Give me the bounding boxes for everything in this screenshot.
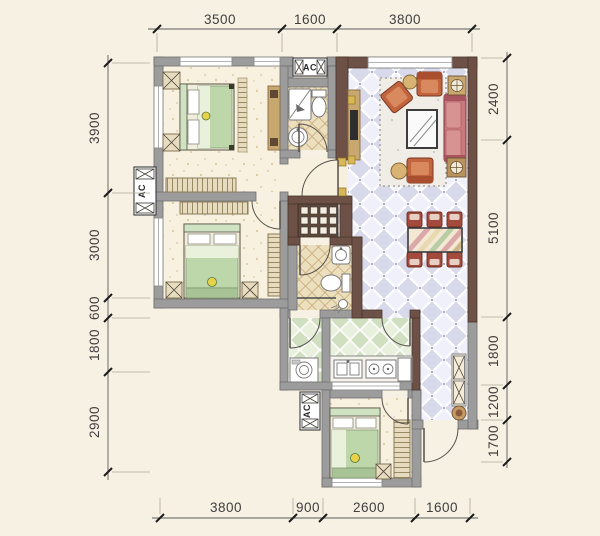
wall-top-stub <box>327 57 336 66</box>
bed-icon <box>184 224 240 298</box>
dresser-icon <box>268 86 280 150</box>
dim-label: 1600 <box>294 12 326 27</box>
stove-icon <box>366 360 396 378</box>
ac-unit-top: AC <box>293 58 327 76</box>
wall-living-left <box>336 57 348 160</box>
window-bedroom1-left <box>154 86 163 148</box>
shower-icon <box>289 89 311 120</box>
floor-plan-canvas: AC AC AC 3500 1600 3 <box>0 0 600 536</box>
window-kitchen-bottom <box>332 382 400 390</box>
dim-label: 3500 <box>204 12 236 27</box>
wall-bathroom1-corner <box>328 150 336 158</box>
ac-unit-left: AC <box>134 167 156 215</box>
wall-bathroom1-bottom <box>280 150 300 158</box>
laundry-fixtures <box>290 358 318 382</box>
window-bedroom3-bottom <box>332 478 382 487</box>
dining-set <box>404 212 472 267</box>
dim-label: 3900 <box>87 112 102 144</box>
floor-plan: AC AC AC 3500 1600 3 <box>0 0 600 536</box>
wall-bathroom2-left <box>288 245 297 310</box>
bedside-runner <box>238 78 247 152</box>
window-bedroom2-left <box>154 218 163 286</box>
wall-entry-bottom-a <box>412 420 423 429</box>
washing-machine-icon <box>290 358 318 382</box>
kitchen-fixtures <box>330 356 412 382</box>
shoe-cabinet-icon <box>298 204 338 237</box>
door-jamb-bottom <box>338 188 346 196</box>
side-wardrobe-icon <box>268 234 280 296</box>
window-bedroom1-top-1 <box>180 57 232 66</box>
wall-bathroom1-right <box>328 66 336 150</box>
dim-label: 5100 <box>486 212 501 244</box>
wall-bedroom2-door-stub <box>280 192 288 201</box>
dim-label: 1600 <box>426 500 458 515</box>
dim-label: 900 <box>296 500 320 515</box>
ac-label: AC <box>137 184 147 198</box>
wall-bedroom2-right <box>280 201 288 308</box>
dim-label: 1200 <box>486 386 501 418</box>
ac-unit-bottom: AC <box>300 392 320 430</box>
kitchen-cabinet <box>398 358 411 381</box>
ac-label: AC <box>303 63 317 73</box>
wardrobe-icon <box>394 420 410 478</box>
dim-label: 3800 <box>210 500 242 515</box>
wall-kitchen-top-a <box>362 310 382 318</box>
toilet-icon <box>312 90 326 117</box>
dim-label: 1800 <box>87 329 102 361</box>
bed-icon <box>180 84 234 150</box>
entry-furniture <box>452 354 466 420</box>
wall-bedroom2-bottom <box>154 299 288 308</box>
wall-bedroom1-bathroom1 <box>280 66 288 164</box>
wall-bedroom1-bottom <box>154 192 256 201</box>
wall-right-lower <box>468 322 477 429</box>
sink-icon <box>289 128 308 147</box>
wall-kitchen-right <box>412 318 420 390</box>
side-table-icon <box>391 163 407 179</box>
dim-label: 2900 <box>87 406 102 438</box>
wall-bedroom3-right <box>412 390 421 487</box>
dim-label: 1700 <box>486 425 501 457</box>
toilet-icon <box>321 274 350 292</box>
wall-corridor-right <box>340 204 352 241</box>
coffee-table-icon <box>407 110 437 148</box>
wardrobe-icon <box>180 202 248 214</box>
dim-label: 3000 <box>87 229 102 261</box>
dim-label: 600 <box>87 296 102 320</box>
plant-pot-icon <box>452 406 466 420</box>
wardrobe-icon <box>166 178 236 192</box>
wall-hall-bottom <box>288 196 352 204</box>
door-jamb-top <box>338 158 346 166</box>
entry-cabinet-icon <box>452 354 466 406</box>
armchair-icon <box>407 158 433 183</box>
corner-table-icon <box>448 76 466 95</box>
wall-bathroom2-right <box>352 237 362 318</box>
window-living-top <box>368 57 452 68</box>
wall-laundry-kitchen <box>322 318 330 390</box>
sink-icon <box>332 246 350 264</box>
wall-laundry-left <box>280 308 288 390</box>
wall-bathroom2-top-a <box>288 237 300 245</box>
wall-bedroom3-left <box>322 390 330 487</box>
dim-label: 1800 <box>486 335 501 367</box>
sofa-icon <box>444 94 466 162</box>
bed-icon <box>330 408 380 478</box>
tv-cabinet-icon <box>348 90 360 164</box>
wall-kitchen-top-b <box>410 310 420 318</box>
dim-label: 2600 <box>353 500 385 515</box>
armchair-icon <box>417 72 442 96</box>
wall-right-upper <box>468 57 477 322</box>
kitchen-sink-icon <box>334 360 362 378</box>
dim-label: 2400 <box>486 83 501 115</box>
wall-bedroom3-top-a <box>322 390 382 398</box>
corner-table-icon <box>447 158 466 177</box>
ac-label: AC <box>302 404 312 418</box>
window-bedroom1-top-2 <box>254 57 280 66</box>
side-table-icon <box>403 75 417 89</box>
dim-label: 3800 <box>389 12 421 27</box>
